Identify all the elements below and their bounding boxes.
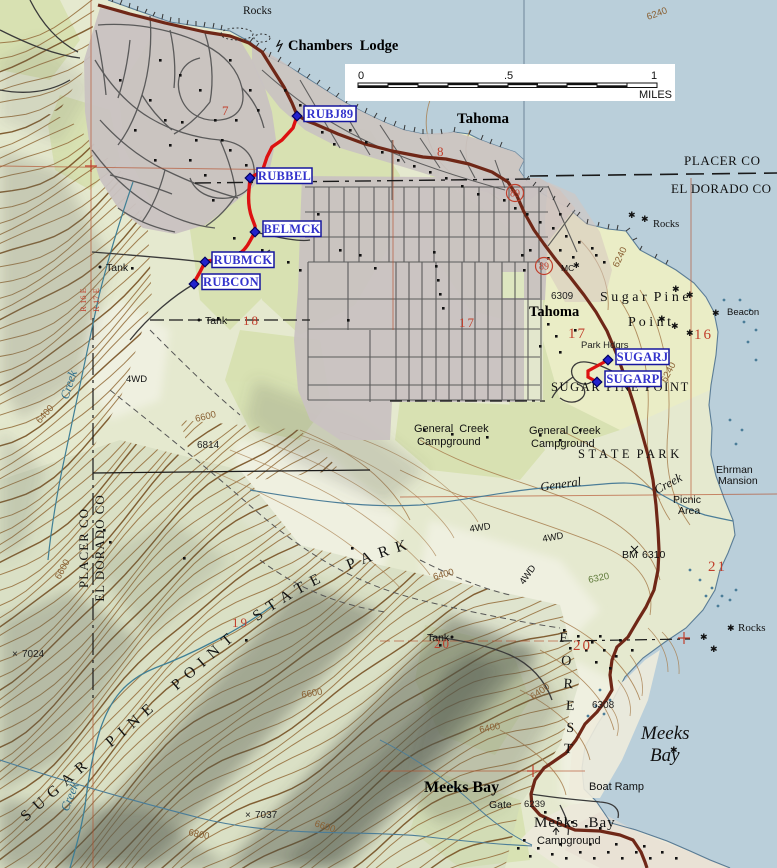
svg-text:6308: 6308: [592, 700, 615, 711]
svg-text:Tank: Tank: [106, 262, 129, 274]
svg-text:89: 89: [510, 189, 520, 200]
svg-text:S: S: [566, 721, 575, 736]
svg-text:Tahoma: Tahoma: [457, 111, 509, 127]
svg-text:6814: 6814: [197, 440, 220, 451]
svg-text:6310: 6310: [642, 549, 666, 561]
svg-text:✱: ✱: [658, 314, 666, 324]
svg-text:20: 20: [573, 638, 592, 654]
svg-text:Rocks: Rocks: [653, 219, 679, 230]
svg-text:R 17 E: R 17 E: [91, 288, 101, 312]
svg-text:Mansion: Mansion: [718, 475, 758, 487]
svg-text:O: O: [561, 654, 572, 670]
svg-text:General Creek: General Creek: [414, 423, 489, 435]
svg-text:SUGARJ: SUGARJ: [617, 350, 669, 364]
svg-text:✱: ✱: [641, 214, 649, 224]
svg-text:PLACER CO: PLACER CO: [684, 153, 761, 168]
svg-text:RUBJ89: RUBJ89: [307, 107, 354, 121]
svg-text:6239: 6239: [524, 799, 545, 810]
svg-text:✱: ✱: [672, 284, 680, 294]
svg-text:Tahoma: Tahoma: [529, 304, 580, 320]
svg-text:✱: ✱: [686, 328, 694, 338]
svg-text:17: 17: [568, 326, 587, 342]
svg-text:4WD: 4WD: [126, 374, 147, 385]
svg-text:F: F: [559, 631, 568, 646]
svg-text:PLACER CO: PLACER CO: [76, 508, 91, 588]
svg-text:Meeks Bay: Meeks Bay: [424, 779, 499, 796]
svg-text:Meeks: Meeks: [640, 723, 690, 744]
svg-text:20: 20: [434, 636, 451, 651]
svg-text:Boat Ramp: Boat Ramp: [589, 781, 644, 793]
svg-text:6309: 6309: [551, 291, 574, 302]
svg-text:.5: .5: [504, 70, 513, 82]
svg-text:18: 18: [243, 313, 260, 328]
svg-text:RUBCON: RUBCON: [203, 275, 259, 289]
svg-text:E: E: [566, 699, 575, 714]
svg-text:0: 0: [358, 70, 364, 82]
svg-text:EL DORADO CO: EL DORADO CO: [92, 494, 107, 602]
svg-text:Bay: Bay: [650, 745, 680, 766]
svg-text:R 16 E: R 16 E: [78, 288, 88, 312]
svg-text:Rocks: Rocks: [738, 622, 766, 634]
svg-text:×: ×: [12, 649, 18, 660]
svg-text:T: T: [564, 742, 574, 757]
svg-text:21: 21: [708, 559, 727, 575]
svg-text:✱: ✱: [710, 644, 718, 654]
svg-text:✱: ✱: [671, 321, 679, 331]
svg-text:✱: ✱: [712, 308, 720, 318]
svg-text:✱: ✱: [573, 261, 580, 270]
svg-text:Campground: Campground: [531, 438, 595, 450]
svg-text:Gate: Gate: [489, 799, 512, 811]
svg-text:8: 8: [437, 144, 444, 159]
svg-text:✱: ✱: [686, 290, 694, 300]
svg-text:RUBBEL: RUBBEL: [258, 169, 311, 183]
svg-text:✱: ✱: [700, 632, 708, 642]
svg-text:16: 16: [694, 327, 713, 343]
svg-text:1: 1: [651, 70, 657, 82]
svg-text:✱: ✱: [628, 210, 636, 220]
svg-text:General Creek: General Creek: [529, 425, 601, 437]
svg-text:Campground: Campground: [417, 436, 481, 448]
svg-text:RUBMCK: RUBMCK: [214, 253, 273, 267]
svg-text:Tank: Tank: [205, 315, 228, 327]
svg-text:17: 17: [459, 315, 476, 330]
svg-text:Meeks Bay: Meeks Bay: [534, 815, 616, 831]
svg-text:BELMCK: BELMCK: [263, 222, 320, 236]
svg-text:89: 89: [539, 262, 549, 273]
svg-text:Chambers Lodge: Chambers Lodge: [288, 38, 399, 54]
svg-text:Campground: Campground: [537, 835, 601, 847]
svg-text:Beacon: Beacon: [727, 307, 759, 318]
svg-text:MILES: MILES: [639, 89, 672, 101]
svg-text:7037: 7037: [255, 810, 278, 821]
svg-text:✱: ✱: [727, 623, 735, 633]
svg-text:7024: 7024: [22, 649, 45, 660]
svg-text:Area: Area: [678, 505, 700, 517]
svg-text:SUGARP: SUGARP: [606, 372, 659, 386]
svg-text:R: R: [563, 677, 574, 693]
svg-text:EL DORADO CO: EL DORADO CO: [671, 181, 771, 196]
svg-text:7: 7: [222, 103, 229, 118]
svg-text:×: ×: [245, 810, 251, 821]
svg-text:Rocks: Rocks: [243, 5, 272, 17]
